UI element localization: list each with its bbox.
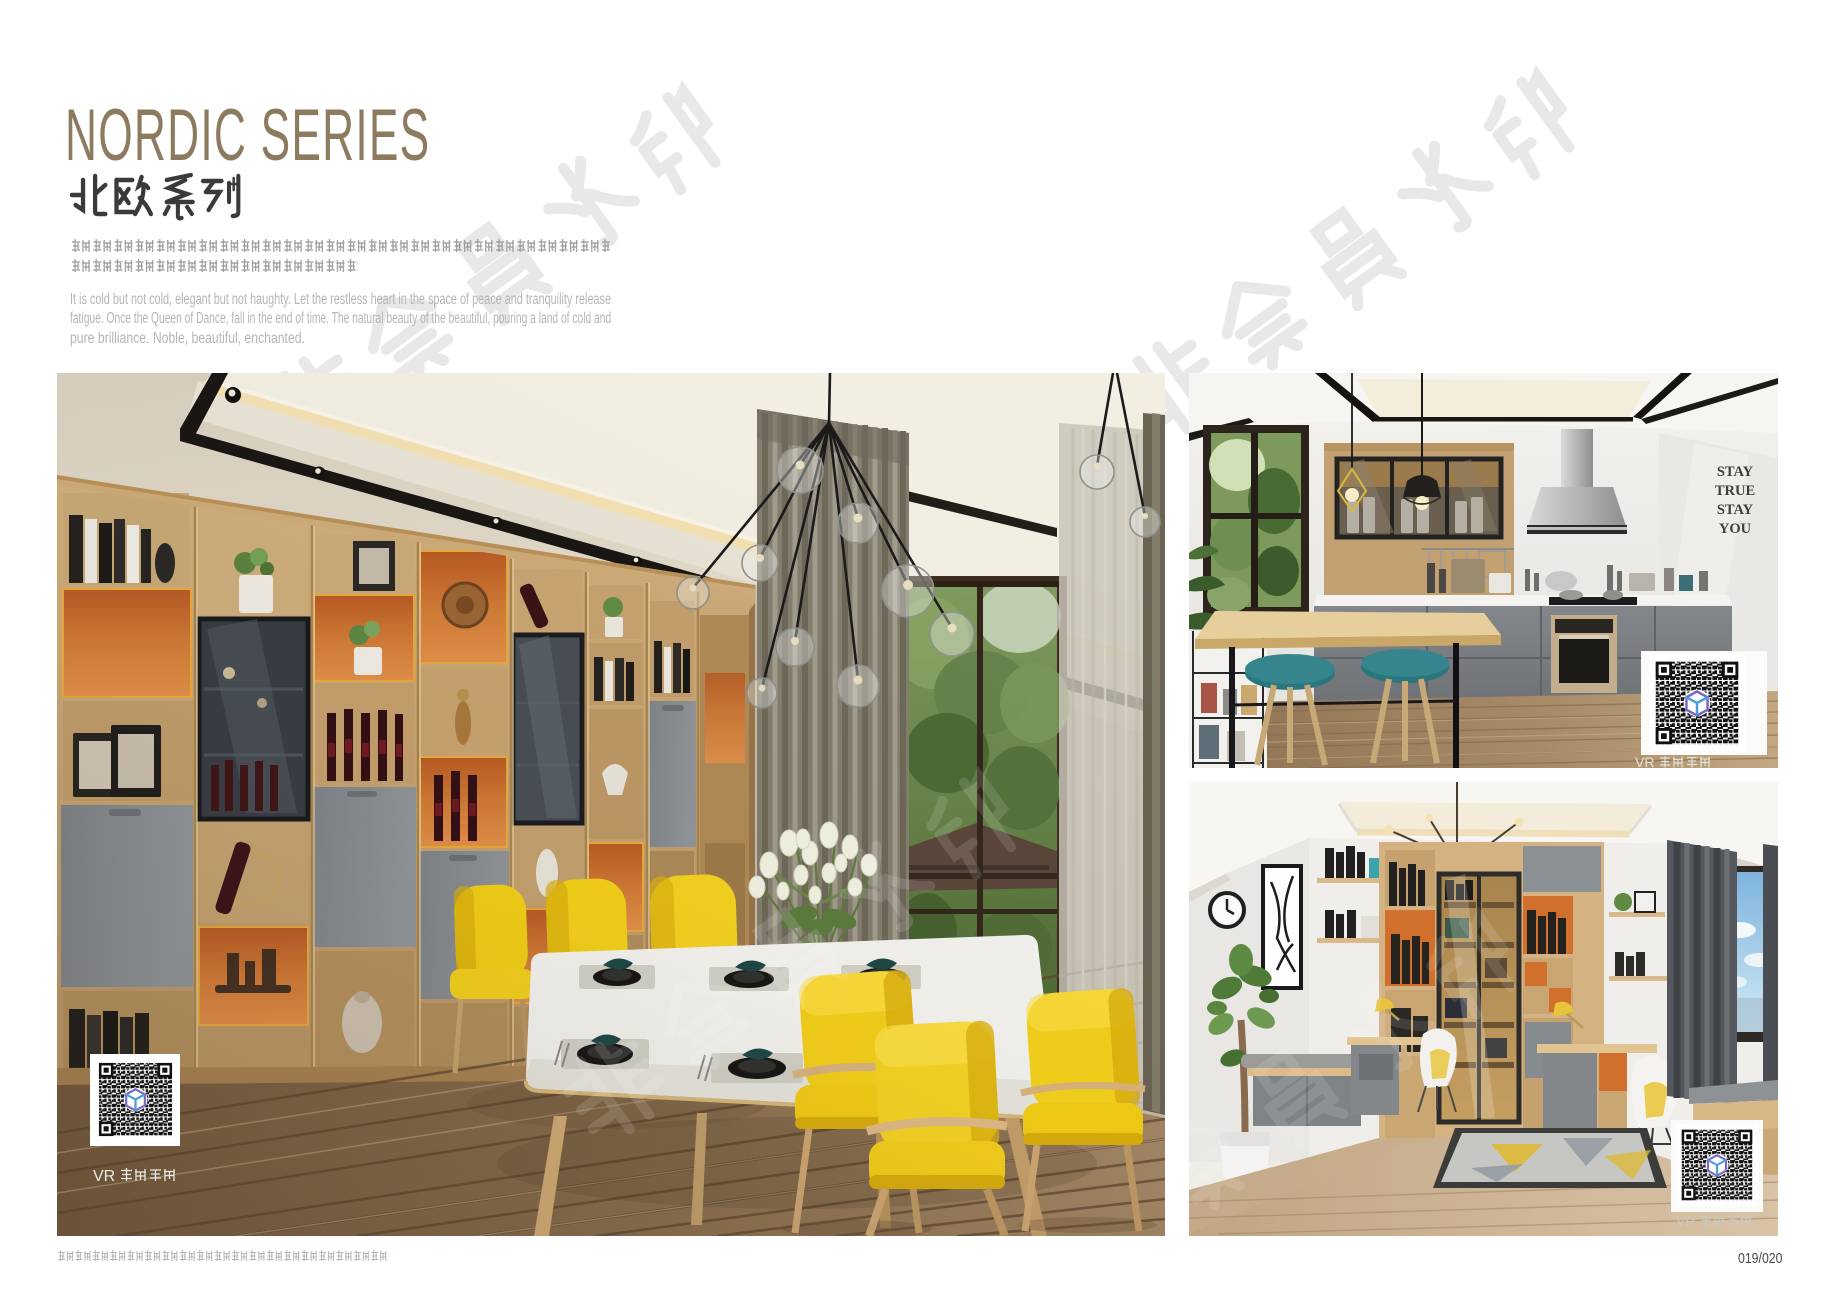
svg-text:STAY: STAY: [1717, 464, 1754, 480]
svg-text:VR: VR: [1676, 1213, 1695, 1229]
svg-text:VR: VR: [93, 1168, 115, 1185]
svg-text:VR: VR: [1635, 754, 1654, 768]
svg-text:STAY: STAY: [1717, 502, 1754, 518]
svg-text:TRUE: TRUE: [1715, 483, 1755, 499]
svg-text:YOU: YOU: [1719, 521, 1752, 537]
